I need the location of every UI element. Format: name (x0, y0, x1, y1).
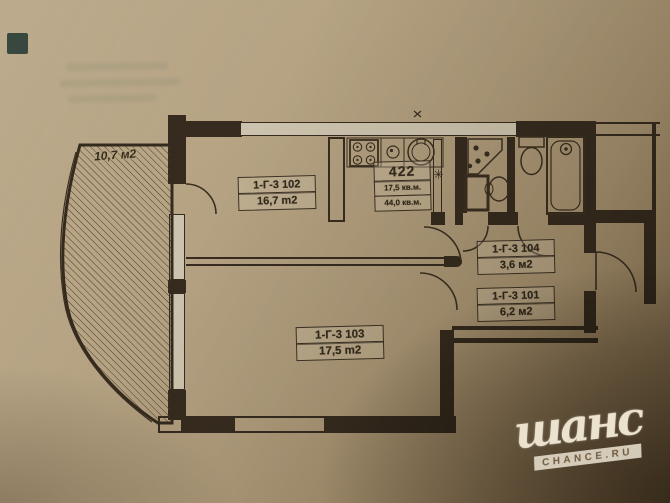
bathtub-icon (547, 137, 584, 214)
floor-plan-scan: 10,7 м2 1-Г-3 102 16,7 m2 422 17,5 кв.м.… (0, 0, 670, 503)
room-label-101: 1-Г-3 101 6,2 м2 (477, 286, 556, 322)
scan-artifact-square (7, 33, 28, 54)
balcony-hatch (63, 145, 172, 423)
watermark: шанс CHANCE.RU (511, 391, 670, 494)
entrance-door-arc (596, 252, 636, 292)
room-area: 17,5 m2 (296, 341, 384, 361)
corner-shower-icon (468, 139, 502, 174)
washing-machine-icon (466, 176, 488, 210)
balcony-area-label: 10,7 м2 (94, 147, 137, 164)
room-label-102: 1-Г-3 102 16,7 m2 (238, 175, 317, 211)
living-door-arc (424, 227, 461, 264)
toilet-icon (519, 137, 544, 175)
room-area: 6,2 м2 (477, 302, 555, 322)
balcony-door-arc (186, 184, 216, 214)
room-label-103: 1-Г-3 103 17,5 m2 (296, 325, 385, 362)
room-area: 16,7 m2 (238, 191, 316, 211)
room-label-104: 1-Г-3 104 3,6 м2 (477, 239, 556, 275)
bedroom-door-arc (420, 273, 457, 310)
vent-mark-icon (414, 111, 421, 117)
footnote-marker: ✳ (433, 168, 444, 183)
total-area-value: 44,0 кв.м. (374, 194, 431, 211)
apartment-summary-table: 422 17,5 кв.м. 44,0 кв.м. (373, 160, 431, 211)
drain-icon (387, 146, 399, 158)
room-area: 3,6 м2 (477, 255, 555, 275)
